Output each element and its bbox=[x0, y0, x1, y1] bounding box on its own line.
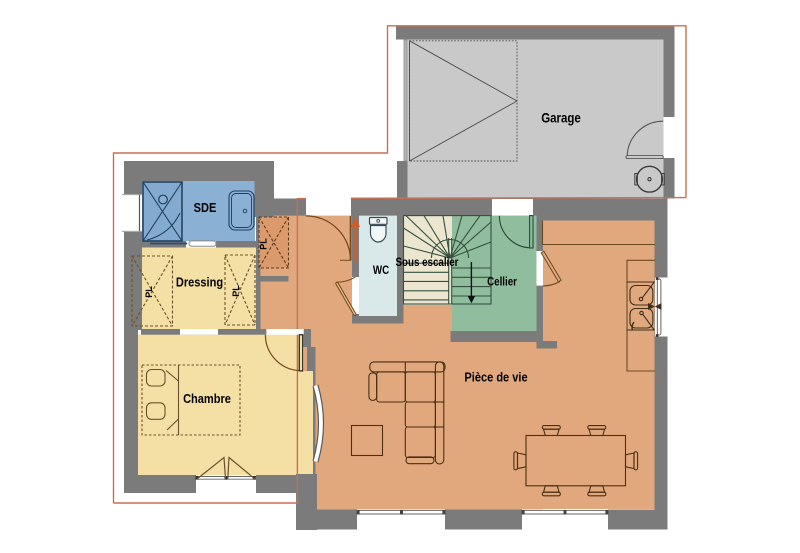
svg-text:PL: PL bbox=[144, 286, 154, 298]
svg-text:Sous escalier: Sous escalier bbox=[396, 256, 459, 269]
svg-text:SDE: SDE bbox=[194, 200, 217, 215]
svg-text:Dressing: Dressing bbox=[176, 275, 223, 290]
svg-text:Cellier: Cellier bbox=[487, 276, 517, 289]
svg-text:Pièce de vie: Pièce de vie bbox=[464, 370, 527, 385]
svg-text:PL: PL bbox=[259, 238, 269, 250]
svg-text:Chambre: Chambre bbox=[183, 391, 231, 406]
svg-text:PL: PL bbox=[231, 285, 241, 297]
svg-text:Garage: Garage bbox=[541, 111, 581, 126]
svg-text:WC: WC bbox=[373, 264, 390, 277]
